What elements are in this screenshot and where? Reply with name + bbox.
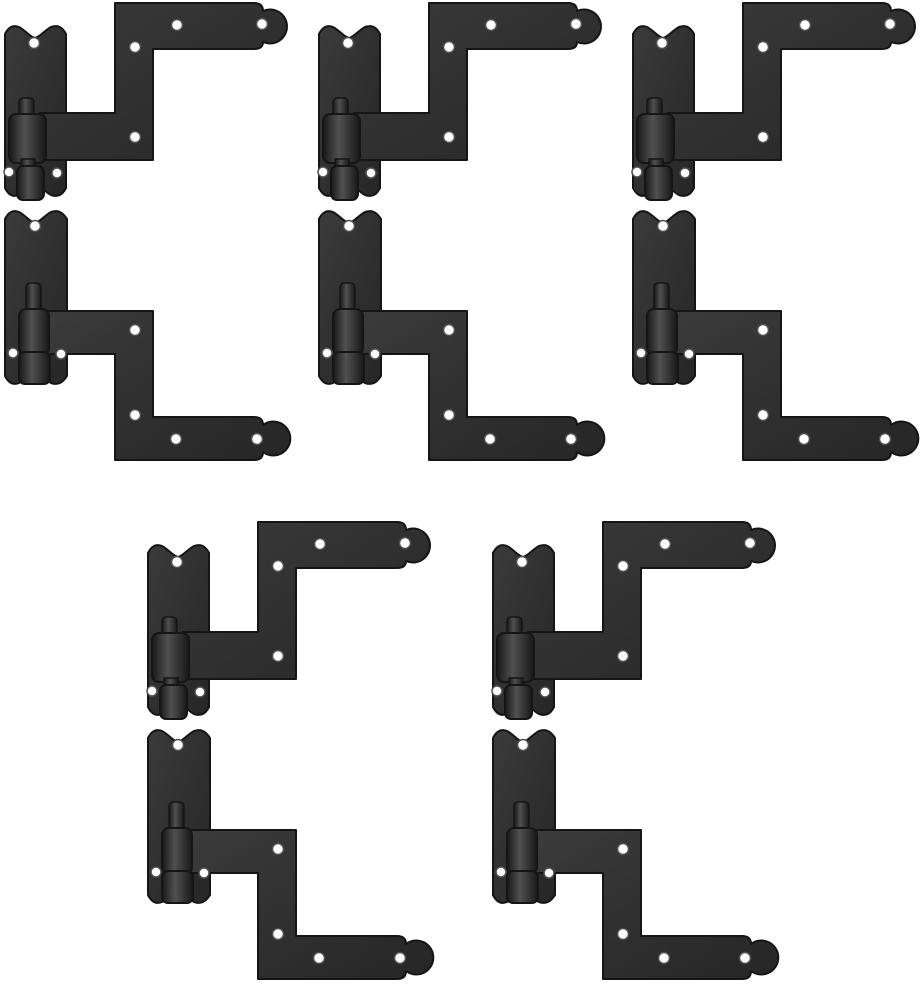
upper-hinge [318, 3, 601, 200]
screw-hole [618, 561, 629, 572]
pintle-barrel [333, 352, 364, 384]
screw-hole [660, 539, 671, 550]
screw-hole [195, 687, 205, 697]
screw-hole [659, 953, 670, 964]
screw-hole [318, 167, 328, 177]
screw-hole [444, 132, 455, 143]
upper-hinge [4, 3, 287, 200]
upper-hinge [492, 522, 775, 719]
pintle-barrel [645, 166, 672, 200]
screw-hole [496, 867, 506, 877]
screw-hole [492, 686, 502, 696]
screw-hole [173, 740, 184, 751]
screw-hole [400, 538, 411, 549]
screw-hole [444, 410, 455, 421]
screw-hole [314, 953, 325, 964]
screw-hole [151, 867, 161, 877]
hinge-knuckle [323, 114, 360, 163]
screw-hole [544, 868, 554, 878]
upper-l-bracket [528, 522, 775, 679]
upper-hinge [147, 522, 430, 719]
screw-hole [680, 168, 690, 178]
screw-hole [273, 651, 284, 662]
screw-hole [880, 434, 891, 445]
screw-hole [130, 410, 141, 421]
screw-hole [618, 651, 629, 662]
screw-hole [130, 325, 141, 336]
screw-hole [257, 19, 268, 30]
screw-hole [147, 686, 157, 696]
lower-hinge [493, 730, 778, 979]
screw-hole [758, 325, 769, 336]
screw-hole [343, 38, 354, 49]
screw-hole [758, 42, 769, 53]
screw-hole [199, 868, 209, 878]
screw-hole [273, 561, 284, 572]
hinge-product-illustration [0, 0, 922, 985]
hinge-knuckle [647, 309, 677, 355]
upper-l-bracket [668, 3, 915, 160]
screw-hole [758, 132, 769, 143]
screw-hole [171, 434, 182, 445]
hinge-knuckle [637, 114, 674, 163]
screw-hole [566, 434, 577, 445]
hinge-pair-5 [492, 522, 778, 979]
screw-hole [252, 434, 263, 445]
lower-hinge [5, 211, 290, 460]
screw-hole [444, 325, 455, 336]
hinge-pair-2 [318, 3, 604, 460]
pintle-barrel [19, 352, 50, 384]
screw-hole [444, 42, 455, 53]
screw-hole [657, 38, 668, 49]
hinge-knuckle [152, 633, 189, 682]
screw-hole [130, 132, 141, 143]
pintle-pin-top [169, 802, 184, 830]
hinge-pair-3 [632, 3, 918, 460]
screw-hole [740, 953, 751, 964]
pintle-pin-top [26, 283, 41, 311]
upper-l-bracket [40, 3, 287, 160]
screw-hole [370, 349, 380, 359]
screw-hole [273, 844, 284, 855]
pintle-barrel [331, 166, 358, 200]
screw-hole [618, 929, 629, 940]
screw-hole [29, 38, 40, 49]
pintle-barrel [17, 166, 44, 200]
product-image [0, 0, 922, 985]
pintle-barrel [160, 685, 187, 719]
screw-hole [518, 740, 529, 751]
pintle-barrel [647, 352, 678, 384]
hinge-knuckle [507, 828, 537, 874]
screw-hole [758, 410, 769, 421]
screw-hole [485, 434, 496, 445]
screw-hole [618, 844, 629, 855]
screw-hole [172, 557, 183, 568]
screw-hole [366, 168, 376, 178]
hinge-knuckle [162, 828, 192, 874]
hinge-knuckle [9, 114, 46, 163]
pintle-pin-top [514, 802, 529, 830]
screw-hole [517, 557, 528, 568]
screw-hole [800, 20, 811, 31]
screw-hole [130, 42, 141, 53]
upper-hinge [632, 3, 915, 200]
screw-hole [799, 434, 810, 445]
hinge-pairs-layer [4, 3, 918, 979]
screw-hole [172, 20, 183, 31]
lower-hinge [148, 730, 433, 979]
screw-hole [344, 221, 355, 232]
screw-hole [52, 168, 62, 178]
upper-l-bracket [183, 522, 430, 679]
hinge-knuckle [497, 633, 534, 682]
hinge-knuckle [333, 309, 363, 355]
screw-hole [684, 349, 694, 359]
screw-hole [8, 348, 18, 358]
hinge-pair-4 [147, 522, 433, 979]
screw-hole [395, 953, 406, 964]
lower-hinge [633, 211, 918, 460]
screw-hole [273, 929, 284, 940]
screw-hole [636, 348, 646, 358]
upper-l-bracket [354, 3, 601, 160]
screw-hole [745, 538, 756, 549]
pintle-pin-top [654, 283, 669, 311]
screw-hole [540, 687, 550, 697]
screw-hole [571, 19, 582, 30]
hinge-pair-1 [4, 3, 290, 460]
screw-hole [486, 20, 497, 31]
screw-hole [658, 221, 669, 232]
pintle-pin-top [340, 283, 355, 311]
screw-hole [315, 539, 326, 550]
pintle-barrel [162, 871, 193, 903]
screw-hole [322, 348, 332, 358]
screw-hole [30, 221, 41, 232]
lower-hinge [319, 211, 604, 460]
screw-hole [885, 19, 896, 30]
pintle-barrel [507, 871, 538, 903]
screw-hole [56, 349, 66, 359]
screw-hole [4, 167, 14, 177]
screw-hole [632, 167, 642, 177]
pintle-barrel [505, 685, 532, 719]
hinge-knuckle [19, 309, 49, 355]
